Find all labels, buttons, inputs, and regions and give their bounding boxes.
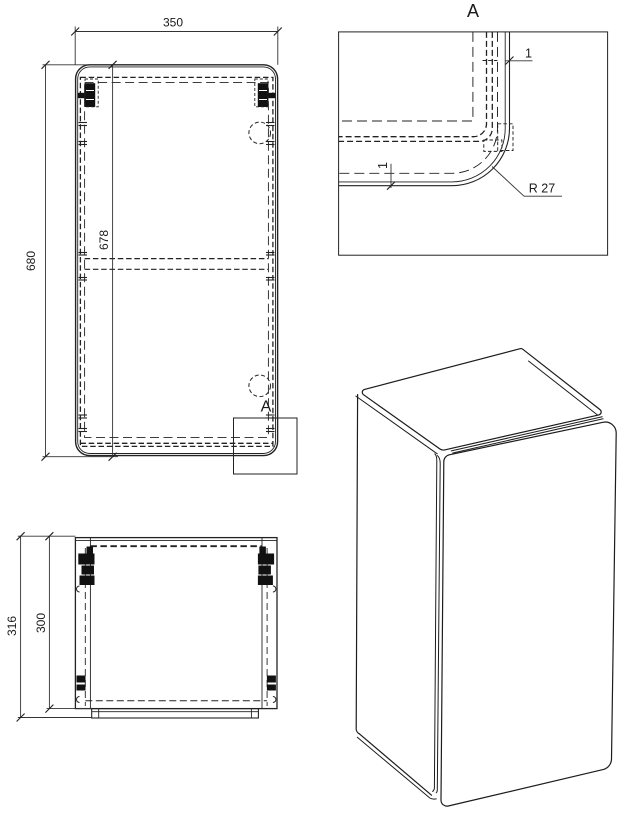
svg-text:350: 350 <box>163 16 183 30</box>
svg-text:A: A <box>261 399 272 416</box>
svg-text:A: A <box>467 1 479 21</box>
svg-text:680: 680 <box>24 251 38 271</box>
svg-text:1: 1 <box>376 162 390 169</box>
svg-text:300: 300 <box>34 613 48 633</box>
svg-text:678: 678 <box>97 230 111 250</box>
svg-text:316: 316 <box>5 616 19 636</box>
svg-text:R 27: R 27 <box>529 182 555 196</box>
svg-text:1: 1 <box>525 47 532 61</box>
